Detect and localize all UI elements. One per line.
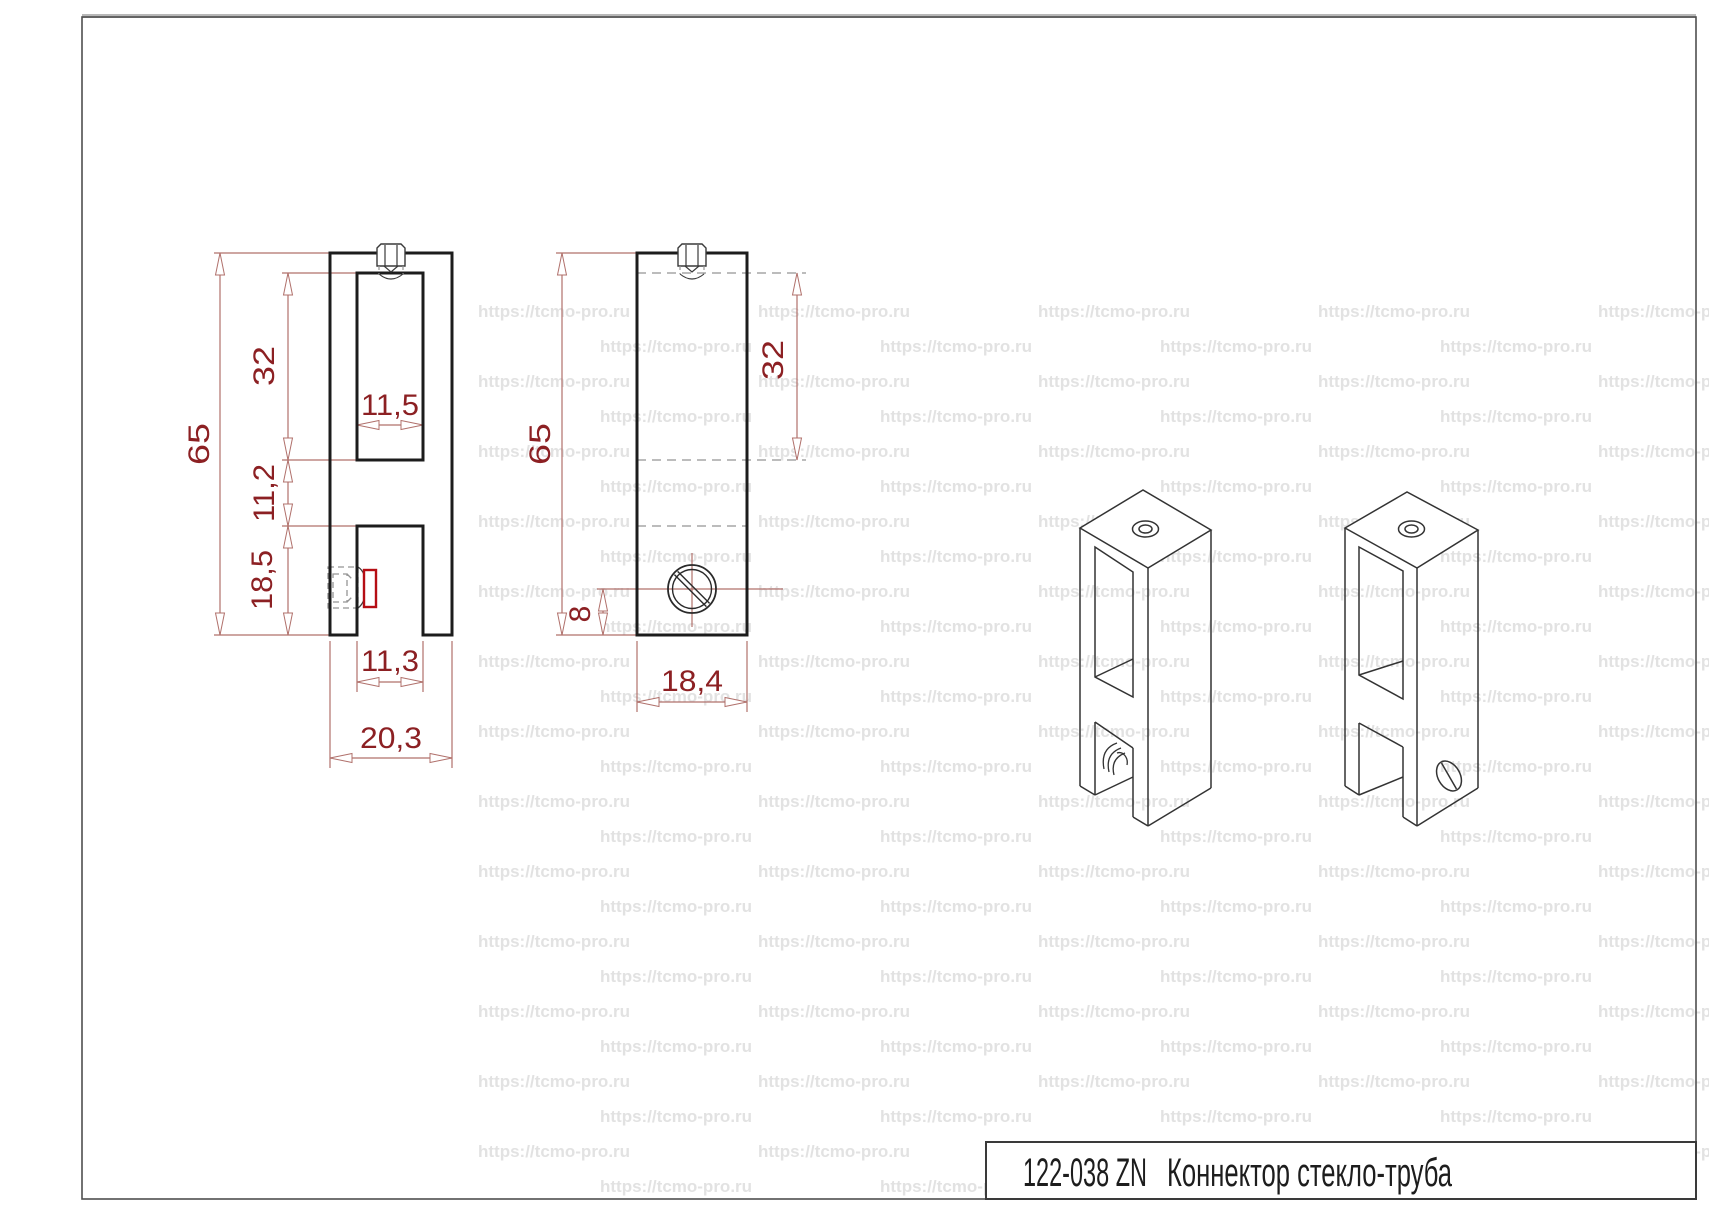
- front-hidden-screw: [328, 567, 366, 608]
- side-extension-lines: [556, 253, 797, 712]
- side-top-screw: [678, 244, 706, 279]
- iso2-screw-head: [1431, 757, 1466, 796]
- title-block: 122-038 ZN Коннектор стекло-труба: [986, 1142, 1696, 1199]
- side-view: 65 32 8 18,4: [524, 244, 806, 712]
- dim-front-lower: 18,5: [246, 550, 279, 610]
- screw-head: [678, 244, 706, 266]
- part-name: Коннектор стекло-труба: [1167, 1151, 1452, 1195]
- frame-border: [82, 17, 1696, 1199]
- dim-side-width: 18,4: [661, 665, 723, 698]
- drawing-page: https://tcmo-pro.ruhttps://tcmo-pro.ruht…: [0, 0, 1709, 1213]
- side-dimension-texts: 65 32 8 18,4: [524, 340, 790, 698]
- iso1-screw: [1103, 743, 1127, 775]
- iso-view-2: [1345, 492, 1478, 826]
- dim-front-height: 65: [183, 423, 216, 465]
- dim-side-slot-depth: 32: [757, 340, 790, 380]
- dim-side-height: 65: [524, 423, 557, 465]
- front-outline: [330, 253, 452, 635]
- dim-front-width: 20,3: [360, 722, 422, 755]
- dim-front-slot-depth: 32: [248, 346, 281, 386]
- dim-front-middle: 11,2: [248, 464, 281, 522]
- screw-head: [377, 244, 405, 266]
- clamp-pad-highlight: [364, 570, 376, 607]
- front-view: 65 32 11,2 18,5 11,5 11,3 20,3: [183, 244, 452, 768]
- dim-front-lower-slot-width: 11,3: [361, 645, 419, 678]
- part-code: 122-038 ZN: [1023, 1151, 1147, 1195]
- iso-view-1: [1080, 490, 1211, 826]
- dim-front-slot-width: 11,5: [361, 389, 419, 422]
- front-dimension-texts: 65 32 11,2 18,5 11,5 11,3 20,3: [183, 346, 422, 755]
- drawing-frame: [82, 16, 1696, 1199]
- technical-drawing: 65 32 11,2 18,5 11,5 11,3 20,3: [0, 0, 1709, 1213]
- side-hidden-lines: [637, 273, 806, 526]
- dim-side-screw-offset: 8: [564, 606, 597, 623]
- side-arrowheads: [558, 253, 802, 707]
